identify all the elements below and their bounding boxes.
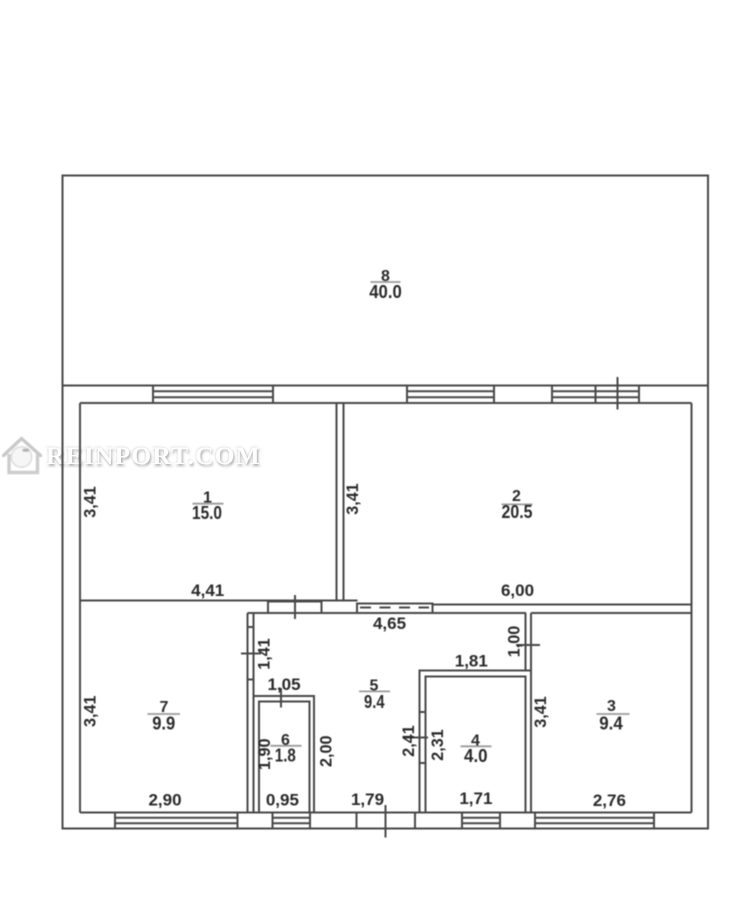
svg-text:3,41: 3,41 [531,696,550,728]
svg-text:2,90: 2,90 [148,791,181,810]
svg-text:9.9: 9.9 [152,712,175,733]
svg-text:1,41: 1,41 [255,638,274,670]
svg-text:4.0: 4.0 [464,745,488,766]
svg-text:4,65: 4,65 [373,614,406,633]
svg-text:0,95: 0,95 [266,791,299,810]
svg-text:4,41: 4,41 [191,581,224,600]
svg-text:3,41: 3,41 [343,483,362,515]
svg-text:2,31: 2,31 [428,729,447,761]
svg-text:1,81: 1,81 [455,651,488,670]
svg-text:6,00: 6,00 [501,581,534,600]
svg-text:9.4: 9.4 [364,691,385,712]
svg-text:1,00: 1,00 [505,626,524,658]
svg-text:2,41: 2,41 [399,725,418,757]
svg-text:2,00: 2,00 [317,735,336,767]
svg-text:1,79: 1,79 [351,790,384,809]
svg-text:20.5: 20.5 [502,501,533,522]
svg-text:3,41: 3,41 [81,486,100,518]
svg-text:1.8: 1.8 [275,745,296,766]
svg-text:40.0: 40.0 [369,281,402,302]
svg-text:2,76: 2,76 [593,791,626,810]
svg-text:3,41: 3,41 [81,696,100,728]
svg-text:15.0: 15.0 [192,502,222,523]
svg-text:1,71: 1,71 [459,789,492,808]
svg-text:1,05: 1,05 [267,675,300,694]
svg-text:9.4: 9.4 [599,712,623,733]
svg-text:1,90: 1,90 [255,738,274,770]
